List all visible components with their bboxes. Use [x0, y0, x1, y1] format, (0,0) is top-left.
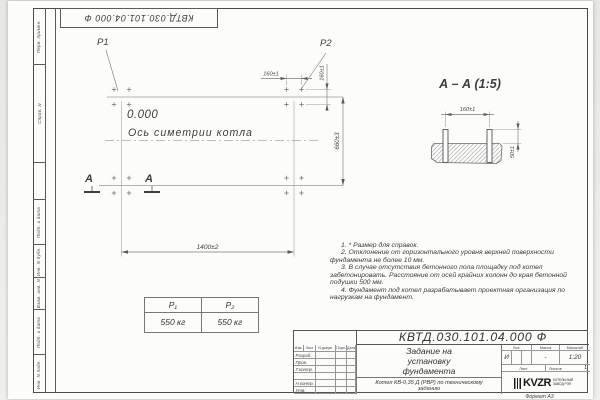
margin-label: Справ. N: [37, 103, 42, 124]
empty-cell: [336, 366, 347, 373]
notes-block: 1. * Размер для справок. 2. Отклонение о…: [330, 242, 584, 302]
empty-cell: [336, 380, 347, 387]
drawing-title-line3: фундамента: [403, 366, 456, 376]
row-label-prov: Пров.: [294, 359, 316, 366]
margin-cell-sprav-n: Справ. N: [33, 65, 45, 163]
change-header-ndoc: N докум.: [316, 345, 336, 352]
row-label-razrab: Разраб.: [294, 352, 316, 359]
margin-label: Инв. N дубл.: [37, 246, 42, 275]
load-table-value-p1: 550 кг: [144, 312, 202, 333]
drawing-title-line1: Задание на: [406, 346, 452, 356]
sheets-label: Листов: [549, 366, 562, 371]
manufacturer-logo: KVZR КОТЕЛЬНЫЙ ЗАВОД РЭП: [502, 372, 590, 394]
change-header-izm: Изм.: [294, 345, 304, 352]
field-left-line: [55, 8, 56, 393]
row-label-nkontr: Н.контр.: [294, 380, 316, 387]
margin-cell-podp-data-2: Подп. и дата: [33, 310, 45, 355]
sheets-value: 1: [584, 365, 587, 371]
margin-label: Инв. N подл.: [37, 359, 42, 388]
load-table-value-p2: 550 кг: [201, 312, 259, 333]
empty-cell: [347, 359, 356, 366]
lit-value: И: [502, 351, 512, 365]
row-label-blank: [294, 373, 316, 380]
change-header-podp: Подп.: [336, 345, 347, 352]
sheets-cell: Листов 1: [546, 365, 590, 372]
empty-cell: [316, 373, 336, 380]
title-block-right: Лит. Масса Масштаб И - 1:20 Лист Листов …: [501, 345, 589, 394]
empty-cell: [336, 373, 347, 380]
drawing-sheet-page: { "sheet": { "stamp_number": "КВТД.030.1…: [0, 0, 600, 400]
change-header-data: Дата: [347, 345, 356, 352]
margin-cell-empty: [33, 163, 45, 200]
empty-cell: [316, 387, 336, 394]
margin-label: Взам. инв. N: [37, 279, 42, 308]
load-table-header-p1: Р₁: [144, 297, 202, 313]
title-block: КВТД.030.101.04.000 Ф Изм. Лист N докум.…: [293, 330, 588, 393]
margin-strip-line: [45, 8, 46, 393]
title-block-doc-number: КВТД.030.101.04.000 Ф: [356, 331, 589, 345]
margin-cell-podp-data-1: Подп. и дата: [33, 200, 45, 245]
margin-label: Перв. примен.: [37, 19, 42, 52]
empty-cell: [347, 366, 356, 373]
drawing-subject: Котел КВ-0,35 Д (РВР) по техническому за…: [356, 377, 501, 394]
lit-empty-cell: [512, 351, 522, 365]
empty-cell: [336, 352, 347, 359]
margin-cell-perv-primen: Перв. примен.: [33, 8, 45, 65]
load-table-header-p2: Р₂: [201, 297, 259, 313]
logo-text: KVZR: [523, 377, 551, 389]
scale-value: 1:20: [560, 351, 590, 365]
row-label-tkontr: Т.контр.: [294, 366, 316, 373]
margin-label: Подп. и дата: [37, 316, 42, 347]
empty-cell: [316, 380, 336, 387]
mass-value: -: [532, 351, 560, 365]
format-label: Формат А3: [492, 394, 587, 400]
empty-cell: [316, 366, 336, 373]
empty-cell: [336, 387, 347, 394]
margin-label: Подп. и дата: [37, 206, 42, 237]
change-header-list: Лист: [304, 345, 316, 352]
margin-cell-inv-dubl: Инв. N дубл.: [33, 245, 45, 278]
drawing-title: Задание на установку фундамента: [356, 345, 501, 377]
empty-cell: [347, 373, 356, 380]
top-stamp-number: КВТД.030.101.04.000 Ф: [84, 13, 194, 23]
top-stamp-box: КВТД.030.101.04.000 Ф: [60, 8, 218, 28]
empty-cell: [336, 359, 347, 366]
sheet-label: Лист: [502, 365, 546, 372]
logo-stripes-icon: [514, 378, 521, 389]
logo-caption: КОТЕЛЬНЫЙ ЗАВОД РЭП: [553, 379, 578, 387]
empty-cell: [347, 387, 356, 394]
margin-cell-vzam-inv: Взам. инв. N: [33, 278, 45, 310]
note-line: 4. Фундамент под котел разрабатывает про…: [330, 287, 584, 302]
margin-cell-inv-podl: Инв. N подл.: [33, 355, 45, 393]
note-line: 3. В случае отсутствия бетонного пола пл…: [330, 264, 584, 286]
load-table: Р₁ Р₂ 550 кг 550 кг: [144, 297, 258, 332]
lit-empty-cell: [522, 351, 532, 365]
empty-cell: [316, 359, 336, 366]
empty-cell: [347, 352, 356, 359]
note-line: 2. Отклонение от горизонтального уровня …: [330, 249, 584, 264]
drawing-title-line2: установку: [408, 356, 451, 366]
empty-cell: [347, 380, 356, 387]
row-label-utv: Утв.: [294, 387, 316, 394]
title-block-change-grid: Изм. Лист N докум. Подп. Дата Разраб. Пр…: [294, 345, 356, 394]
empty-cell: [316, 352, 336, 359]
